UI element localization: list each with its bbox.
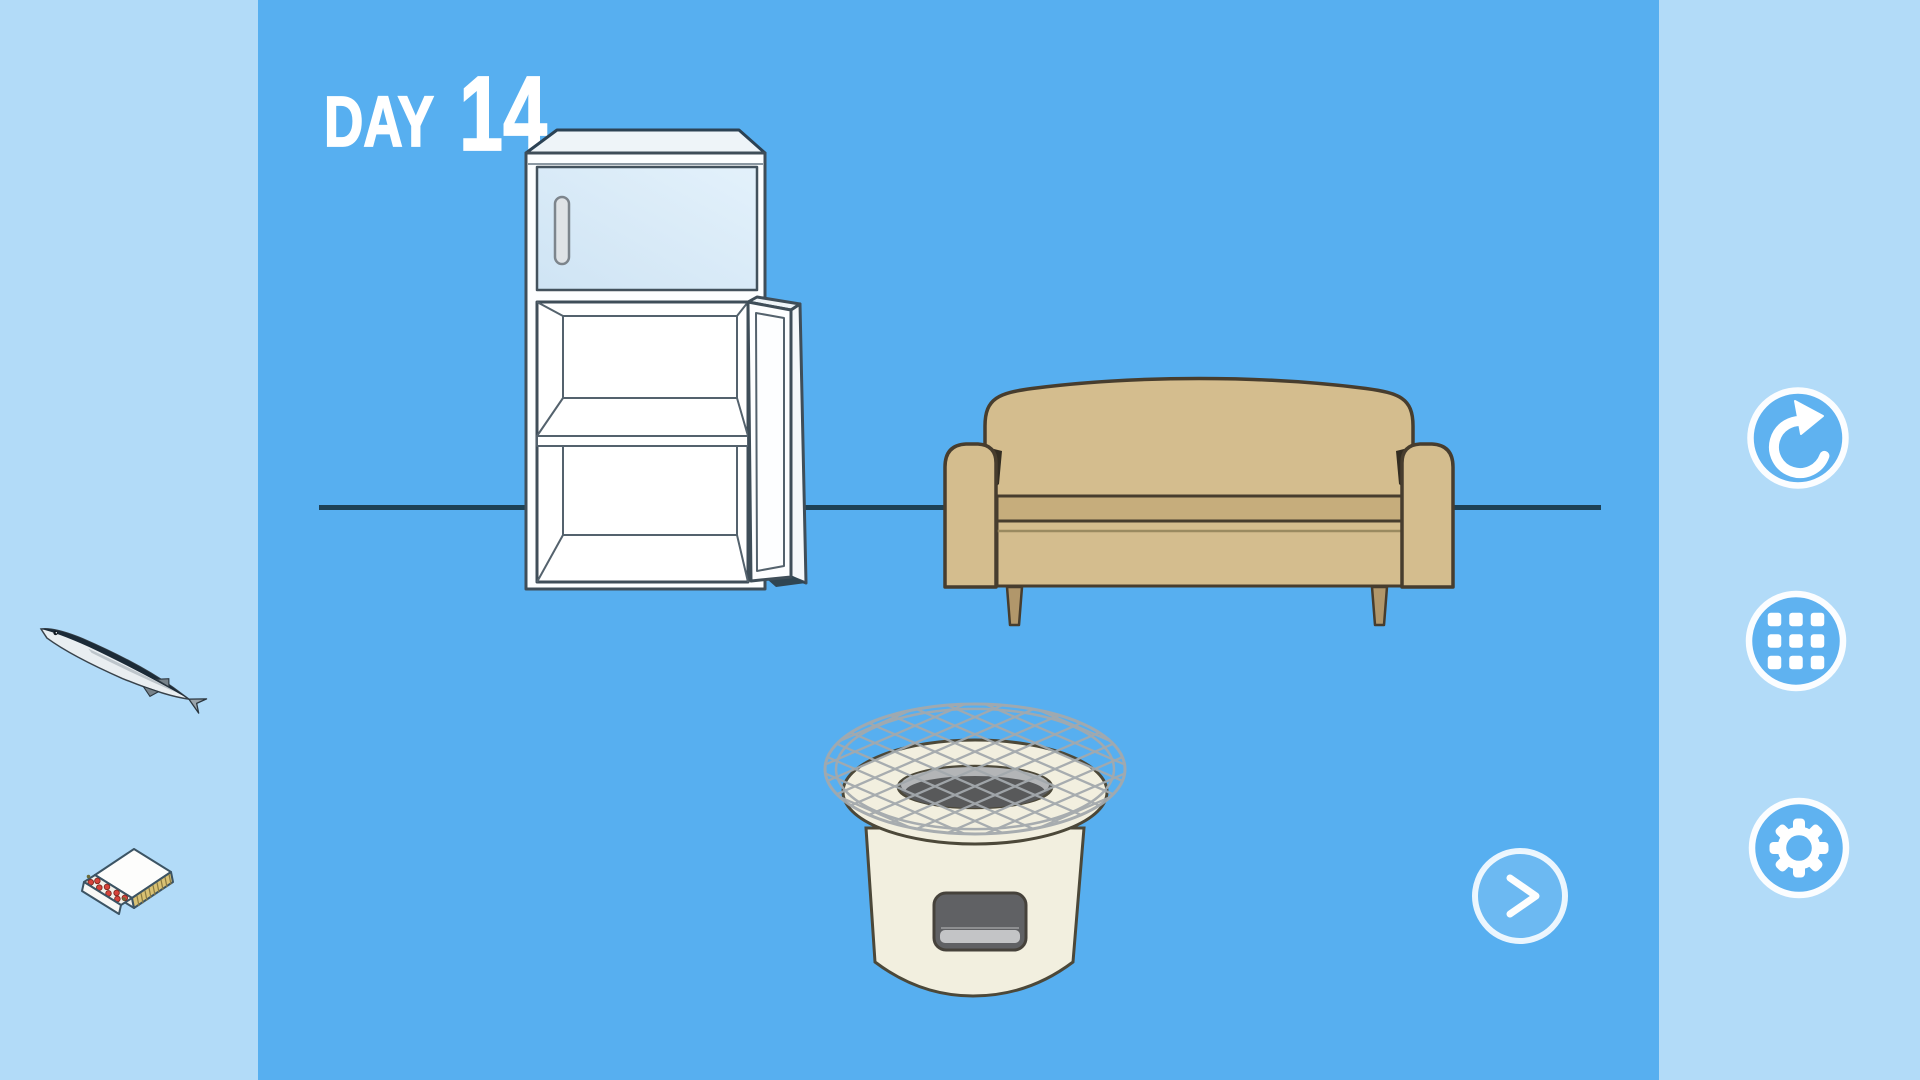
svg-text:DAY: DAY bbox=[324, 83, 434, 162]
